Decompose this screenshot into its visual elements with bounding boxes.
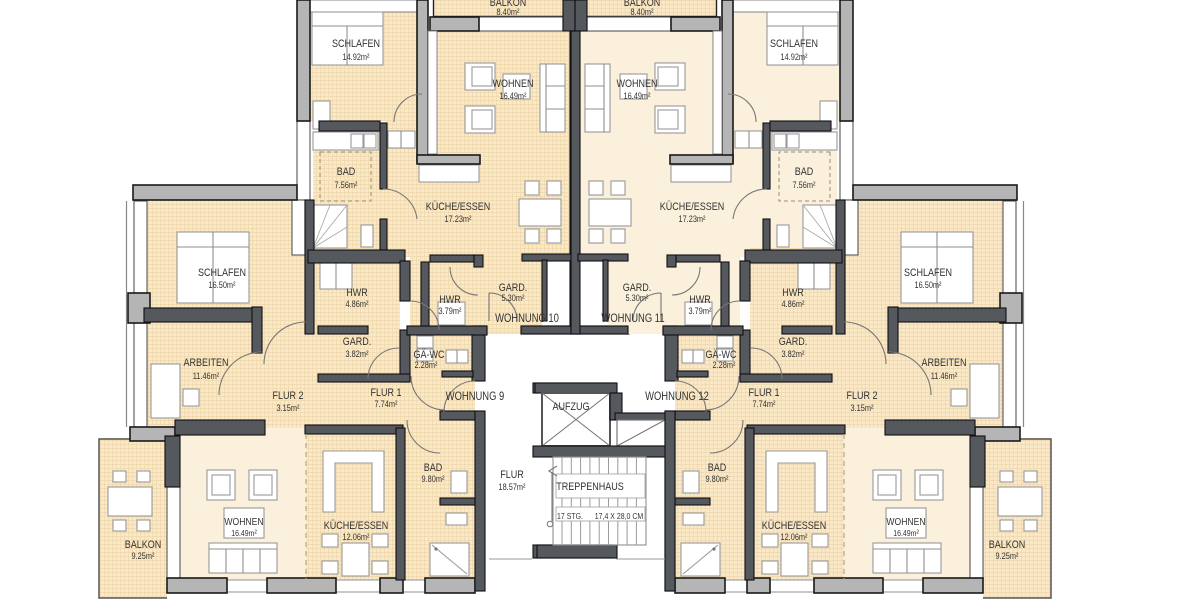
svg-text:FLUR 1: FLUR 1 <box>370 387 401 399</box>
svg-text:WOHNEN: WOHNEN <box>886 516 925 528</box>
svg-text:FLUR: FLUR <box>500 469 524 481</box>
svg-text:BALKON: BALKON <box>989 539 1026 551</box>
svg-text:2.28m²: 2.28m² <box>415 360 438 370</box>
svg-text:KÜCHE/ESSEN: KÜCHE/ESSEN <box>426 200 491 213</box>
svg-text:WOHNUNG 11: WOHNUNG 11 <box>601 312 664 325</box>
svg-text:14.92m²: 14.92m² <box>342 52 369 62</box>
svg-text:4.86m²: 4.86m² <box>346 299 369 309</box>
svg-text:12.06m²: 12.06m² <box>342 532 369 542</box>
svg-text:17.23m²: 17.23m² <box>678 214 705 224</box>
svg-text:HWR: HWR <box>346 287 368 299</box>
svg-text:17,4 X 28,0 CM: 17,4 X 28,0 CM <box>595 511 643 521</box>
svg-text:KÜCHE/ESSEN: KÜCHE/ESSEN <box>324 519 389 532</box>
svg-text:4.86m²: 4.86m² <box>782 299 805 309</box>
svg-text:WOHNEN: WOHNEN <box>616 78 657 90</box>
svg-text:ARBEITEN: ARBEITEN <box>921 357 966 369</box>
svg-text:FLUR 2: FLUR 2 <box>272 390 303 402</box>
svg-text:9.80m²: 9.80m² <box>706 474 729 484</box>
svg-text:SCHLAFEN: SCHLAFEN <box>770 38 818 50</box>
svg-text:HWR: HWR <box>689 294 711 306</box>
svg-text:3.79m²: 3.79m² <box>439 306 462 316</box>
svg-text:3.82m²: 3.82m² <box>782 349 805 359</box>
svg-text:16.49m²: 16.49m² <box>231 528 257 538</box>
svg-text:TREPPENHAUS: TREPPENHAUS <box>556 481 624 493</box>
svg-text:SCHLAFEN: SCHLAFEN <box>198 267 246 279</box>
svg-text:BAD: BAD <box>708 462 727 474</box>
svg-text:17 STG.: 17 STG. <box>557 511 583 521</box>
svg-text:BAD: BAD <box>795 166 814 178</box>
svg-text:8.40m²: 8.40m² <box>631 7 654 17</box>
svg-text:GÄ-WC: GÄ-WC <box>413 348 444 361</box>
svg-text:WOHNEN: WOHNEN <box>224 516 263 528</box>
svg-text:HWR: HWR <box>782 287 804 299</box>
svg-text:16.49m²: 16.49m² <box>623 91 650 101</box>
svg-text:16.49m²: 16.49m² <box>499 91 526 101</box>
svg-text:BAD: BAD <box>424 462 443 474</box>
svg-text:WOHNUNG 12: WOHNUNG 12 <box>645 390 709 403</box>
svg-text:5.30m²: 5.30m² <box>502 293 525 303</box>
svg-text:14.92m²: 14.92m² <box>780 52 807 62</box>
svg-text:HWR: HWR <box>439 294 461 306</box>
svg-text:FLUR 1: FLUR 1 <box>748 387 779 399</box>
svg-text:12.06m²: 12.06m² <box>780 532 807 542</box>
svg-text:9.25m²: 9.25m² <box>996 551 1019 561</box>
svg-text:3.15m²: 3.15m² <box>277 403 300 413</box>
svg-text:WOHNUNG 9: WOHNUNG 9 <box>446 390 505 403</box>
svg-text:ARBEITEN: ARBEITEN <box>183 357 228 369</box>
svg-text:SCHLAFEN: SCHLAFEN <box>332 38 380 50</box>
svg-text:SCHLAFEN: SCHLAFEN <box>904 267 952 279</box>
svg-text:7.56m²: 7.56m² <box>335 180 358 190</box>
svg-text:WOHNUNG 10: WOHNUNG 10 <box>495 312 559 325</box>
svg-text:8.40m²: 8.40m² <box>497 7 520 17</box>
svg-text:17.23m²: 17.23m² <box>444 214 471 224</box>
svg-text:BAD: BAD <box>337 166 356 178</box>
svg-text:7.74m²: 7.74m² <box>753 399 776 409</box>
svg-text:9.25m²: 9.25m² <box>132 551 155 561</box>
svg-text:11.46m²: 11.46m² <box>193 371 220 381</box>
svg-text:16.49m²: 16.49m² <box>893 528 919 538</box>
svg-text:3.15m²: 3.15m² <box>851 403 874 413</box>
svg-text:AUFZUG: AUFZUG <box>552 401 589 413</box>
svg-text:KÜCHE/ESSEN: KÜCHE/ESSEN <box>660 200 725 213</box>
svg-text:FLUR 2: FLUR 2 <box>846 390 877 402</box>
svg-text:2.28m²: 2.28m² <box>713 360 736 370</box>
svg-text:16.50m²: 16.50m² <box>914 280 941 290</box>
svg-text:KÜCHE/ESSEN: KÜCHE/ESSEN <box>762 519 827 532</box>
svg-text:3.79m²: 3.79m² <box>689 306 712 316</box>
svg-text:WOHNEN: WOHNEN <box>492 78 533 90</box>
svg-text:16.50m²: 16.50m² <box>208 280 235 290</box>
svg-text:5.30m²: 5.30m² <box>626 293 649 303</box>
svg-text:GÄ-WC: GÄ-WC <box>705 348 736 361</box>
svg-text:9.80m²: 9.80m² <box>422 474 445 484</box>
svg-text:BALKON: BALKON <box>125 539 162 551</box>
svg-text:7.56m²: 7.56m² <box>793 180 816 190</box>
svg-text:GARD.: GARD. <box>779 336 808 348</box>
svg-text:GARD.: GARD. <box>343 336 372 348</box>
svg-text:7.74m²: 7.74m² <box>375 399 398 409</box>
svg-text:3.82m²: 3.82m² <box>346 349 369 359</box>
svg-text:11.46m²: 11.46m² <box>931 371 958 381</box>
svg-text:18.57m²: 18.57m² <box>498 482 525 492</box>
